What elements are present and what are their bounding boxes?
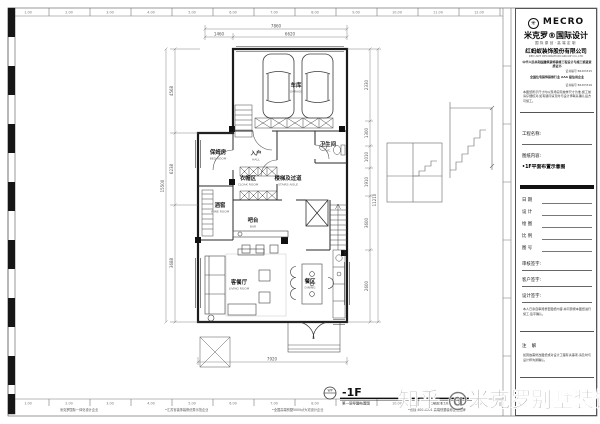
label-nanny-en: BED ROOM bbox=[210, 157, 227, 161]
svg-text:3.00: 3.00 bbox=[106, 402, 114, 406]
label-wc: 卫生间 bbox=[320, 140, 337, 148]
drawing-sheet: 1.002.00 3.004.00 5.006.00 7.008.00 9.00… bbox=[0, 0, 600, 424]
svg-text:3.00: 3.00 bbox=[106, 11, 114, 15]
svg-text:12.00: 12.00 bbox=[474, 11, 484, 15]
dim-left-seg2: 6238 bbox=[169, 163, 174, 174]
drawing-title: -1F bbox=[342, 386, 362, 399]
dim-bottom-total: 7920 bbox=[267, 357, 278, 362]
agreement-text: 本人已亲自审阅整套图纸内容,并同意按本图纸进行施工,签字确认。 bbox=[523, 307, 591, 316]
field-scale-line bbox=[542, 239, 592, 240]
project-name-label: 工程名称: bbox=[522, 131, 541, 137]
field-date-line bbox=[542, 203, 592, 204]
svg-text:2.00: 2.00 bbox=[65, 11, 73, 15]
company-name-en: RED ANT DECORATION GROUP CO.,LTD bbox=[516, 54, 596, 58]
title-block: ✳ MECRO 米克罗®国际设计 国际原创·高端定制 红蚂蚁装饰股份有限公司 R… bbox=[515, 8, 597, 416]
svg-text:1.00: 1.00 bbox=[24, 402, 32, 406]
logo-text: MECRO bbox=[543, 17, 584, 27]
label-nanny: 保姆房 bbox=[209, 148, 227, 156]
title-bubble-text: WP bbox=[327, 389, 332, 393]
stair-detail-sketch bbox=[387, 102, 494, 202]
footer-note-1: 米克罗国际一体化设计企业 bbox=[60, 407, 98, 412]
svg-text:9.00: 9.00 bbox=[352, 11, 360, 15]
svg-text:11.00: 11.00 bbox=[433, 11, 443, 15]
dim-right-seg4: 1910 bbox=[364, 176, 369, 187]
svg-text:6.00: 6.00 bbox=[229, 11, 237, 15]
svg-text:10.00: 10.00 bbox=[392, 11, 402, 15]
client-sign-line bbox=[522, 286, 592, 287]
dim-left-seg1: 4568 bbox=[169, 85, 174, 96]
audit-sign-line bbox=[522, 270, 592, 271]
door-arcs bbox=[213, 131, 329, 176]
field-number-line bbox=[542, 251, 592, 252]
svg-text:1.00: 1.00 bbox=[24, 11, 32, 15]
certificate-1: 中华人民共和国建筑装饰装修工程设计与施工贰级资质证书 bbox=[522, 60, 592, 68]
project-name-line bbox=[522, 144, 592, 145]
sheet-frame bbox=[8, 8, 597, 416]
certificate-2-number: 证书编号 B2203316 bbox=[522, 83, 592, 87]
drawing-content-value: •1F平面布置示意图 bbox=[522, 163, 594, 170]
label-wine-en: WINE ROOM bbox=[211, 210, 230, 214]
terrace bbox=[200, 337, 230, 367]
black-bar bbox=[520, 185, 594, 189]
company-logo: ✳ MECRO bbox=[516, 17, 596, 29]
certificate-2: 全国住宅装饰装修行业 AAA 级信用企业 bbox=[522, 75, 592, 79]
label-living-en: LIVING ROOM bbox=[229, 287, 250, 291]
divider bbox=[520, 377, 594, 378]
floor-plan-drawing: 1.002.00 3.004.00 5.006.00 7.008.00 9.00… bbox=[0, 0, 600, 424]
footer-note-2: •江苏省装饰装修优秀示范企业 bbox=[165, 407, 208, 412]
drawing-notice: 本图纸所示尺寸均以现场实际放样尺寸为准,施工前请仔细核对,如有疑问请及时与设计师… bbox=[523, 90, 591, 103]
bar-counter bbox=[233, 231, 288, 253]
svg-text:4.00: 4.00 bbox=[147, 402, 155, 406]
designer-sign-line bbox=[522, 302, 592, 303]
drawing-subtitle: 第一层平面布置图 bbox=[342, 400, 370, 405]
svg-text:7.00: 7.00 bbox=[270, 402, 278, 406]
field-scale-label: 比 例 bbox=[522, 233, 532, 239]
label-hall: 入户 bbox=[251, 149, 262, 157]
certificate-1-number: 证书编号 B2203315 bbox=[522, 69, 592, 73]
note-label: 注 解 bbox=[522, 343, 538, 349]
garage-entry-steps bbox=[235, 105, 252, 137]
svg-text:4.00: 4.00 bbox=[147, 11, 155, 15]
label-hall-en: HALL bbox=[252, 158, 260, 162]
field-draft-label: 绘 图 bbox=[522, 221, 532, 227]
elevator bbox=[306, 200, 328, 226]
label-wc-en: WC bbox=[325, 149, 330, 153]
svg-text:6.00: 6.00 bbox=[229, 402, 237, 406]
dim-right-seg3: 1010 bbox=[364, 151, 369, 162]
dim-top-total: 7860 bbox=[271, 24, 282, 29]
label-garage: 车库 bbox=[291, 81, 302, 89]
label-cloak: 衣帽区 bbox=[240, 174, 257, 182]
dim-left-total: 15500 bbox=[160, 179, 165, 192]
brand-tagline: 国际原创·高端定制 bbox=[516, 40, 596, 45]
label-wine: 酒窖 bbox=[215, 201, 226, 209]
label-living: 客餐厅 bbox=[231, 278, 248, 286]
note-text: 如因故需修改图纸或对设计工程有关事项,请及时与设计师沟通确认。 bbox=[523, 353, 591, 362]
svg-text:2.00: 2.00 bbox=[65, 402, 73, 406]
label-dining: 餐区 bbox=[305, 277, 316, 285]
field-draft-line bbox=[542, 227, 592, 228]
designer-sign-label: 设计签字: bbox=[522, 293, 541, 299]
label-dining-en: DINING bbox=[305, 286, 317, 290]
field-design-label: 设 计 bbox=[522, 209, 532, 215]
svg-text:8.00: 8.00 bbox=[311, 11, 319, 15]
field-design-line bbox=[542, 215, 592, 216]
label-bar-en: BAR bbox=[250, 225, 256, 229]
label-bar: 吧台 bbox=[248, 216, 259, 224]
dim-top-seg2: 6620 bbox=[285, 32, 296, 37]
audit-sign-label: 审核签字: bbox=[522, 261, 541, 267]
label-cloak-en: CLOAK ROOM bbox=[238, 183, 259, 187]
svg-text:5.00: 5.00 bbox=[188, 402, 196, 406]
drawing-content-label: 图纸内容: bbox=[522, 153, 541, 159]
client-sign-label: 客户签字: bbox=[522, 277, 541, 283]
dim-top-seg1: 1460 bbox=[214, 32, 225, 37]
svg-text:8.00: 8.00 bbox=[311, 402, 319, 406]
dim-right-total: 11210 bbox=[372, 193, 377, 206]
field-number-label: 图 号 bbox=[522, 245, 532, 251]
mecro-seal-icon: ✳ bbox=[528, 18, 539, 29]
dim-left-seg3: 3688 bbox=[169, 257, 174, 268]
dim-right-seg6: 2600 bbox=[364, 280, 369, 291]
left-frame-bar bbox=[8, 8, 15, 414]
garage-cabinets bbox=[255, 118, 333, 128]
label-stairhall-en: STAIRS AISLE bbox=[278, 183, 298, 187]
dim-right-seg2: 1300 bbox=[364, 127, 369, 138]
dim-right-seg1: 2330 bbox=[364, 79, 369, 90]
footer-note-3: •全国高端别墅5000㎡大宅设计企业 bbox=[272, 407, 323, 412]
divider bbox=[520, 331, 594, 332]
divider bbox=[520, 112, 594, 113]
label-stairhall: 楼梯及过道 bbox=[275, 174, 303, 182]
zhihu-watermark: 知乎 @米克罗别墅装饰 bbox=[398, 384, 600, 414]
field-date-label: 日 期 bbox=[522, 197, 532, 203]
dim-right-seg5: 3600 bbox=[364, 217, 369, 228]
svg-text:5.00: 5.00 bbox=[188, 11, 196, 15]
stairs bbox=[330, 204, 347, 250]
kitchen-cabinets bbox=[333, 250, 345, 318]
label-garage-en: GARAGE bbox=[290, 90, 303, 94]
svg-text:7.00: 7.00 bbox=[270, 11, 278, 15]
